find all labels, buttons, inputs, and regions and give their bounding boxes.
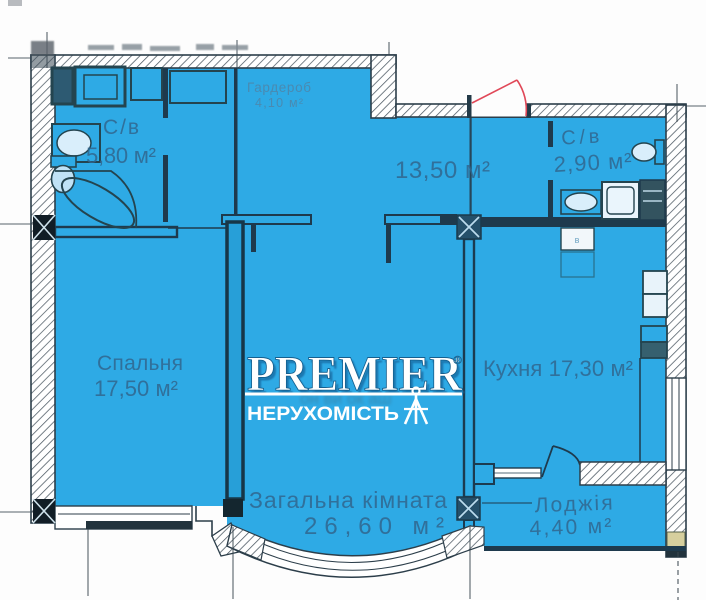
svg-text:Спальня: Спальня <box>97 352 183 375</box>
svg-text:5,80 м²: 5,80 м² <box>86 143 156 168</box>
svg-text:Лоджія: Лоджія <box>534 492 613 518</box>
svg-text:Загальна кімната: Загальна кімната <box>249 487 447 513</box>
svg-text:2,90 м²: 2,90 м² <box>553 148 632 177</box>
svg-text:®: ® <box>453 353 462 367</box>
svg-text:С/в: С/в <box>561 126 600 150</box>
svg-text:в: в <box>575 235 580 245</box>
svg-text:Кухня 17,30 м²: Кухня 17,30 м² <box>483 356 633 381</box>
svg-text:НЕРУХОМІСТЬ: НЕРУХОМІСТЬ <box>247 404 399 425</box>
svg-text:17,50 м²: 17,50 м² <box>94 376 178 401</box>
svg-text:Гардероб: Гардероб <box>247 80 311 95</box>
svg-text:13,50 м²: 13,50 м² <box>395 157 490 184</box>
svg-text:С/в: С/в <box>103 116 139 139</box>
